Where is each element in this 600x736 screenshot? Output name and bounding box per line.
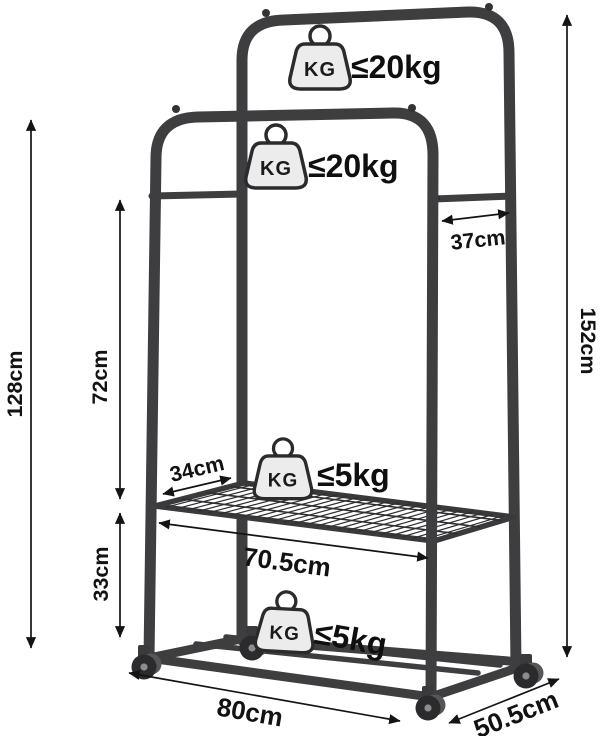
- product-diagram: KG: [0, 0, 600, 736]
- weight-icon: [290, 26, 351, 89]
- left-connector-bar: [152, 194, 242, 196]
- dimension-label: 80cm: [215, 691, 286, 732]
- dimension-shelf-to-base: 33cm: [89, 513, 120, 637]
- dimension-base-width: 80cm: [129, 673, 400, 733]
- dimension-label: 50.5cm: [469, 684, 562, 736]
- badge-top-rail: ≤20kg: [290, 26, 442, 89]
- badge-bottom-shelf: ≤5kg: [255, 590, 390, 662]
- capacity-label: ≤5kg: [317, 457, 390, 493]
- dimension-side-height: 128cm: [3, 120, 31, 648]
- dimension-label: 33cm: [89, 547, 113, 602]
- weight-icon: [254, 439, 312, 499]
- badge-lower-rail: ≤20kg: [246, 125, 399, 188]
- dimension-label: 128cm: [3, 351, 27, 418]
- rack-diagram-canvas: KG: [0, 0, 600, 736]
- right-connector-bar: [434, 196, 512, 199]
- cap-knob-icon: [485, 3, 493, 11]
- cap-knob-icon: [262, 9, 270, 17]
- badge-middle-shelf: ≤5kg: [254, 439, 389, 499]
- capacity-label: ≤20kg: [351, 49, 442, 85]
- dimension-rail-offset: 37cm: [442, 213, 509, 255]
- weight-icon: [255, 590, 316, 653]
- dimension-bar-to-shelf: 72cm: [88, 200, 120, 499]
- dimension-total-height: 152cm: [567, 15, 600, 657]
- cap-knob-icon: [408, 104, 416, 112]
- dimension-label: 70.5cm: [241, 541, 332, 582]
- cap-knob-icon: [172, 105, 180, 113]
- capacity-label: ≤20kg: [308, 148, 399, 184]
- weight-icon: [246, 125, 307, 188]
- dimension-label: 152cm: [576, 308, 600, 375]
- dimension-label: 72cm: [88, 350, 112, 405]
- dimension-label: 37cm: [449, 225, 506, 255]
- rack-illustration: [132, 3, 544, 721]
